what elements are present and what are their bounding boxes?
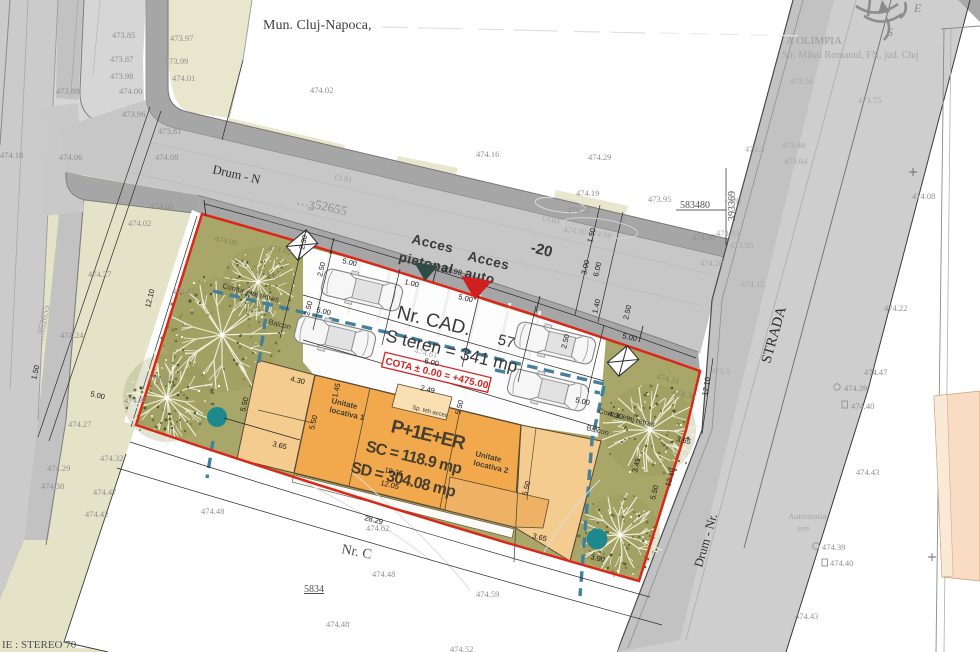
svg-text:474.16: 474.16 <box>476 149 499 159</box>
svg-text:A OLIMPIA: A OLIMPIA <box>786 35 842 47</box>
svg-text:IE : STEREO 70: IE : STEREO 70 <box>2 639 77 651</box>
svg-text:473.99: 473.99 <box>165 56 188 66</box>
svg-text:474.18: 474.18 <box>0 150 23 160</box>
svg-text:474.27: 474.27 <box>68 419 91 429</box>
svg-text:474.06: 474.06 <box>59 152 82 162</box>
svg-text:473.87: 473.87 <box>110 54 133 64</box>
svg-text:474.32: 474.32 <box>100 453 123 463</box>
svg-text:474.43: 474.43 <box>795 611 818 621</box>
svg-text:474.40: 474.40 <box>851 401 874 411</box>
svg-text:473.95: 473.95 <box>648 194 671 204</box>
svg-text:seri: seri <box>797 523 810 533</box>
svg-text:Str. Mihai Romanul, FN, jud. C: Str. Mihai Romanul, FN, jud. Cluj <box>782 50 919 61</box>
svg-text:474.02: 474.02 <box>128 218 151 228</box>
svg-text:473.88: 473.88 <box>56 86 79 96</box>
svg-text:474.08: 474.08 <box>692 232 715 242</box>
svg-text:474.24: 474.24 <box>148 374 172 384</box>
svg-text:473.5: 473.5 <box>711 366 730 376</box>
svg-text:474.39: 474.39 <box>822 542 845 552</box>
svg-text:473.55: 473.55 <box>716 228 739 238</box>
svg-text:Mun. Cluj-Napoca,: Mun. Cluj-Napoca, <box>263 18 371 33</box>
svg-text:474.22: 474.22 <box>884 303 907 313</box>
svg-text:474.30: 474.30 <box>124 395 147 405</box>
svg-text:473.85: 473.85 <box>112 30 135 40</box>
svg-text:S: S <box>887 25 893 39</box>
svg-text:474.15: 474.15 <box>741 279 764 289</box>
svg-text:474.48: 474.48 <box>201 506 224 516</box>
svg-text:473.3: 473.3 <box>745 144 764 154</box>
svg-text:474.05: 474.05 <box>150 201 173 211</box>
svg-text:474.47: 474.47 <box>93 487 116 497</box>
svg-text:583480: 583480 <box>680 200 710 211</box>
svg-text:474.43: 474.43 <box>856 467 879 477</box>
svg-text:5834: 5834 <box>304 584 324 595</box>
svg-text:474.08: 474.08 <box>912 191 935 201</box>
svg-text:473.98: 473.98 <box>110 71 133 81</box>
svg-text:474.29: 474.29 <box>588 152 611 162</box>
svg-text:474.27: 474.27 <box>88 269 111 279</box>
svg-text:474.02: 474.02 <box>310 85 333 95</box>
svg-text:474.22: 474.22 <box>567 205 590 215</box>
svg-text:474.40: 474.40 <box>830 558 853 568</box>
svg-text:474.47: 474.47 <box>864 367 887 377</box>
svg-text:474.24: 474.24 <box>60 330 84 340</box>
svg-text:474.20: 474.20 <box>700 258 723 268</box>
svg-text:473.56: 473.56 <box>790 76 813 86</box>
svg-text:474.42: 474.42 <box>85 509 108 519</box>
svg-text:474.19: 474.19 <box>576 188 599 198</box>
svg-text:474.48: 474.48 <box>326 619 349 629</box>
svg-text:473.97: 473.97 <box>170 33 193 43</box>
svg-text:474.48: 474.48 <box>372 569 395 579</box>
svg-text:473.96: 473.96 <box>122 109 145 119</box>
svg-text:474.52: 474.52 <box>450 644 473 652</box>
svg-text:Autorizatia: Autorizatia <box>788 511 826 521</box>
svg-text:473.81: 473.81 <box>158 126 181 136</box>
svg-text:474.11: 474.11 <box>172 286 195 296</box>
svg-text:473.64: 473.64 <box>784 156 808 166</box>
svg-text:474.38: 474.38 <box>41 481 64 491</box>
svg-text:474.39: 474.39 <box>844 383 867 393</box>
svg-text:474.59: 474.59 <box>476 589 499 599</box>
svg-text:474.01: 474.01 <box>172 73 195 83</box>
svg-text:473.75: 473.75 <box>858 95 881 105</box>
svg-text:474.00: 474.00 <box>119 86 142 96</box>
svg-text:473.48: 473.48 <box>782 140 805 150</box>
svg-text:E: E <box>913 1 922 15</box>
svg-text:473.85: 473.85 <box>730 240 753 250</box>
svg-text:474.08: 474.08 <box>155 152 178 162</box>
svg-text:474.29: 474.29 <box>47 463 70 473</box>
